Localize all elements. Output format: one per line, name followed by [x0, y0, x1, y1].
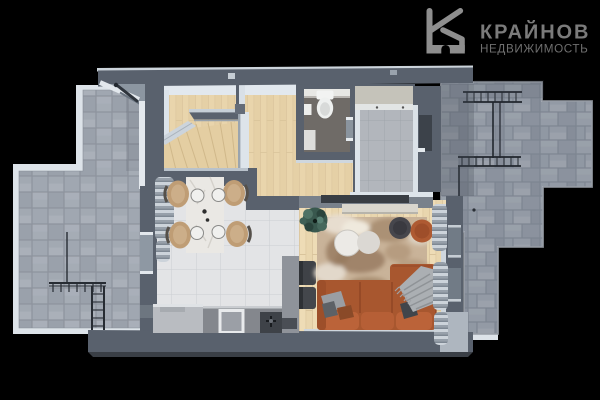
- svg-text:КРАЙНОВ: КРАЙНОВ: [480, 19, 590, 43]
- svg-text:НЕДВИЖИМОСТЬ: НЕДВИЖИМОСТЬ: [480, 42, 588, 55]
